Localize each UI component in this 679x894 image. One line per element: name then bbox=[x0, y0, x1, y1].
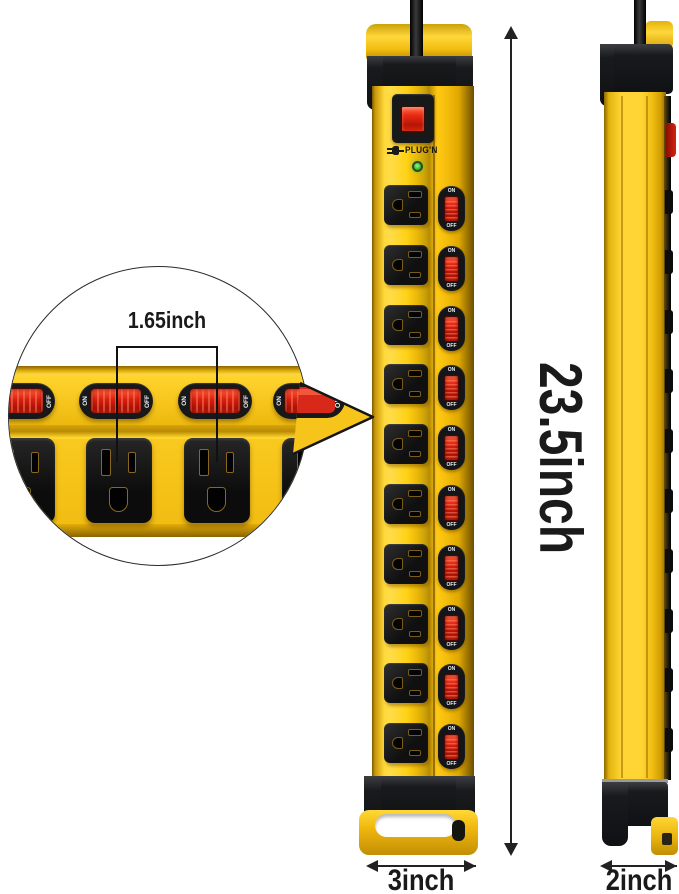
outlet-switch[interactable]: ONOFF bbox=[438, 246, 465, 291]
outlet-slot-top-icon bbox=[408, 490, 422, 497]
spacing-line-left bbox=[116, 346, 118, 462]
inset-switch[interactable]: ONOFF bbox=[8, 383, 55, 419]
outlet-ground-icon bbox=[392, 319, 403, 331]
switch-on-label: ON bbox=[438, 248, 465, 254]
outlet-slot-top-icon bbox=[408, 191, 422, 198]
width-dimension-label: 3inch bbox=[370, 864, 472, 894]
switch-on-label: ON bbox=[438, 427, 465, 433]
outlet-ground-icon bbox=[392, 498, 403, 510]
inset-switch-rocker[interactable] bbox=[189, 388, 241, 414]
height-arrow-up-icon bbox=[504, 26, 518, 39]
switch-on-label: ON bbox=[438, 607, 465, 613]
outlet-ground-icon bbox=[392, 199, 403, 211]
front-panel-seam bbox=[433, 95, 435, 783]
side-foot-latch bbox=[662, 833, 672, 845]
switch-off-label: OFF bbox=[438, 343, 465, 349]
inset-callout-pointer: OFF bbox=[289, 376, 375, 456]
height-arrow-down-icon bbox=[504, 843, 518, 856]
brand-name: PLUG'N bbox=[405, 145, 438, 155]
inset-switch-rocker[interactable] bbox=[8, 388, 44, 414]
outlet-switch[interactable]: ONOFF bbox=[438, 425, 465, 470]
outlet-slot-bot-icon bbox=[409, 511, 421, 517]
outlet bbox=[384, 305, 428, 345]
switch-rocker[interactable] bbox=[444, 555, 459, 581]
outlet-slot-bot-icon bbox=[409, 451, 421, 457]
switch-off-label: OFF bbox=[438, 283, 465, 289]
inset-outlet-slot-l-icon bbox=[199, 449, 209, 476]
outlet-slot-bot-icon bbox=[409, 750, 421, 756]
outlet bbox=[384, 245, 428, 285]
switch-on-label: ON bbox=[438, 188, 465, 194]
switch-off-label: OFF bbox=[438, 642, 465, 648]
side-switch-profile bbox=[665, 489, 673, 513]
side-reset-switch-profile bbox=[666, 123, 676, 157]
switch-off-label: OFF bbox=[438, 462, 465, 468]
front-power-cord bbox=[410, 0, 423, 58]
spacing-bracket-line bbox=[116, 346, 217, 348]
outlet bbox=[384, 364, 428, 404]
outlet-switch[interactable]: ONOFF bbox=[438, 306, 465, 351]
inset-switch-on-label: ON bbox=[274, 383, 284, 419]
switch-off-label: OFF bbox=[438, 701, 465, 707]
side-switch-profile bbox=[665, 668, 673, 692]
inset-strip-bottom-lip bbox=[8, 524, 308, 537]
outlet-ground-icon bbox=[392, 259, 403, 271]
inset-outlet-slot-l-icon bbox=[101, 449, 111, 476]
switch-rocker[interactable] bbox=[444, 375, 459, 401]
outlet-slot-bot-icon bbox=[409, 571, 421, 577]
side-switch-profile bbox=[665, 310, 673, 334]
switch-on-label: ON bbox=[438, 726, 465, 732]
switch-rocker[interactable] bbox=[444, 615, 459, 641]
brand-row: PLUG'N bbox=[387, 145, 443, 156]
outlet-slot-top-icon bbox=[408, 669, 422, 676]
switch-rocker[interactable] bbox=[444, 196, 459, 222]
outlet-slot-top-icon bbox=[408, 370, 422, 377]
inset-face-groove bbox=[8, 425, 308, 439]
inset-switch-off-label: OFF bbox=[44, 383, 54, 419]
switch-rocker[interactable] bbox=[444, 435, 459, 461]
switch-rocker[interactable] bbox=[444, 674, 459, 700]
inset-switch-off-label: OFF bbox=[142, 383, 152, 419]
side-switch-profile bbox=[665, 609, 673, 633]
outlet-slot-top-icon bbox=[408, 430, 422, 437]
outlet-switch[interactable]: ONOFF bbox=[438, 485, 465, 530]
outlet-slot-bot-icon bbox=[409, 212, 421, 218]
outlet-slot-bot-icon bbox=[409, 332, 421, 338]
outlet-spacing-label: 1.65inch bbox=[98, 307, 236, 334]
side-switch-profile bbox=[665, 429, 673, 453]
outlet-slot-top-icon bbox=[408, 550, 422, 557]
zoom-inset-circle: ONOFFONOFFONOFFONOFF 1.65inch bbox=[8, 266, 308, 566]
side-switch-profile bbox=[665, 369, 673, 393]
depth-dimension-label: 2inch bbox=[605, 864, 673, 894]
switch-off-label: OFF bbox=[438, 223, 465, 229]
inset-outlet-slot-r-icon bbox=[226, 452, 234, 473]
side-switch-profile bbox=[665, 190, 673, 214]
reset-off-label: OFF bbox=[392, 96, 434, 102]
side-power-cord bbox=[634, 0, 646, 50]
outlet-ground-icon bbox=[392, 378, 403, 390]
reset-breaker-module: OFF RESET bbox=[392, 94, 434, 143]
reset-rocker-switch[interactable] bbox=[400, 105, 426, 133]
outlet-switch[interactable]: ONOFF bbox=[438, 664, 465, 709]
outlet bbox=[384, 723, 428, 763]
side-body bbox=[604, 92, 666, 782]
inset-outlet bbox=[8, 438, 55, 523]
outlet bbox=[384, 484, 428, 524]
inset-outlet-slot-r-icon bbox=[128, 452, 136, 473]
switch-rocker[interactable] bbox=[444, 256, 459, 282]
outlet bbox=[384, 185, 428, 225]
inset-outlet-ground-icon bbox=[207, 487, 226, 512]
outlet-switch[interactable]: ONOFF bbox=[438, 186, 465, 231]
side-groove-left bbox=[621, 96, 623, 778]
outlet-switch[interactable]: ONOFF bbox=[438, 545, 465, 590]
inset-outlet bbox=[86, 438, 152, 523]
inset-switch-off-label: OFF bbox=[241, 383, 251, 419]
side-switch-profile bbox=[665, 728, 673, 752]
reset-label: RESET bbox=[392, 135, 434, 141]
outlet-slot-bot-icon bbox=[409, 391, 421, 397]
outlet-slot-top-icon bbox=[408, 729, 422, 736]
inset-outlet-ground-icon bbox=[12, 487, 31, 512]
outlet-ground-icon bbox=[392, 558, 403, 570]
front-mount-keyhole-slot bbox=[375, 814, 456, 837]
inset-switch-on-label: ON bbox=[80, 383, 90, 419]
inset-switch[interactable]: ONOFF bbox=[178, 383, 252, 419]
front-base-latch bbox=[452, 820, 465, 841]
inset-strip-top-bevel bbox=[8, 366, 308, 375]
outlet-ground-icon bbox=[392, 618, 403, 630]
inset-switch-on-label: ON bbox=[179, 383, 189, 419]
outlet-switch[interactable]: ONOFF bbox=[438, 724, 465, 769]
side-switch-profile bbox=[665, 250, 673, 274]
switch-on-label: ON bbox=[438, 666, 465, 672]
switch-rocker[interactable] bbox=[444, 495, 459, 521]
switch-on-label: ON bbox=[438, 547, 465, 553]
inset-outlet-slot-l-icon bbox=[8, 449, 14, 476]
power-strip-dimension-diagram: OFF RESET PLUG'N ONOFFONOFFONOFFONOFFONO… bbox=[0, 0, 679, 894]
switch-off-label: OFF bbox=[438, 522, 465, 528]
switch-on-label: ON bbox=[438, 367, 465, 373]
side-groove-right bbox=[646, 96, 648, 778]
switch-on-label: ON bbox=[438, 308, 465, 314]
switch-off-label: OFF bbox=[438, 582, 465, 588]
outlet-slot-top-icon bbox=[408, 311, 422, 318]
plug-icon bbox=[387, 146, 404, 155]
height-dimension-label: 23.5inch bbox=[530, 338, 590, 578]
outlet-slot-top-icon bbox=[408, 251, 422, 258]
outlet bbox=[384, 424, 428, 464]
spacing-line-right bbox=[216, 346, 218, 462]
outlet-slot-bot-icon bbox=[409, 690, 421, 696]
outlet-slot-bot-icon bbox=[409, 631, 421, 637]
outlet bbox=[384, 604, 428, 644]
switch-rocker[interactable] bbox=[444, 734, 459, 760]
outlet bbox=[384, 663, 428, 703]
height-dimension-line bbox=[510, 30, 512, 852]
inset-outlet-ground-icon bbox=[305, 487, 308, 512]
outlet-switch[interactable]: ONOFF bbox=[438, 365, 465, 410]
outlet-switch[interactable]: ONOFF bbox=[438, 605, 465, 650]
outlet-ground-icon bbox=[392, 677, 403, 689]
outlet-ground-icon bbox=[392, 438, 403, 450]
inset-outlet-slot-r-icon bbox=[31, 452, 39, 473]
switch-rocker[interactable] bbox=[444, 316, 459, 342]
power-indicator-led bbox=[412, 161, 423, 172]
outlet-slot-top-icon bbox=[408, 610, 422, 617]
outlet-ground-icon bbox=[392, 737, 403, 749]
switch-on-label: ON bbox=[438, 487, 465, 493]
inset-outlet-ground-icon bbox=[109, 487, 128, 512]
switch-off-label: OFF bbox=[438, 402, 465, 408]
switch-off-label: OFF bbox=[438, 761, 465, 767]
side-switch-profile bbox=[665, 549, 673, 573]
side-bottom-bracket-leg bbox=[602, 782, 628, 846]
outlet bbox=[384, 544, 428, 584]
outlet-slot-bot-icon bbox=[409, 272, 421, 278]
